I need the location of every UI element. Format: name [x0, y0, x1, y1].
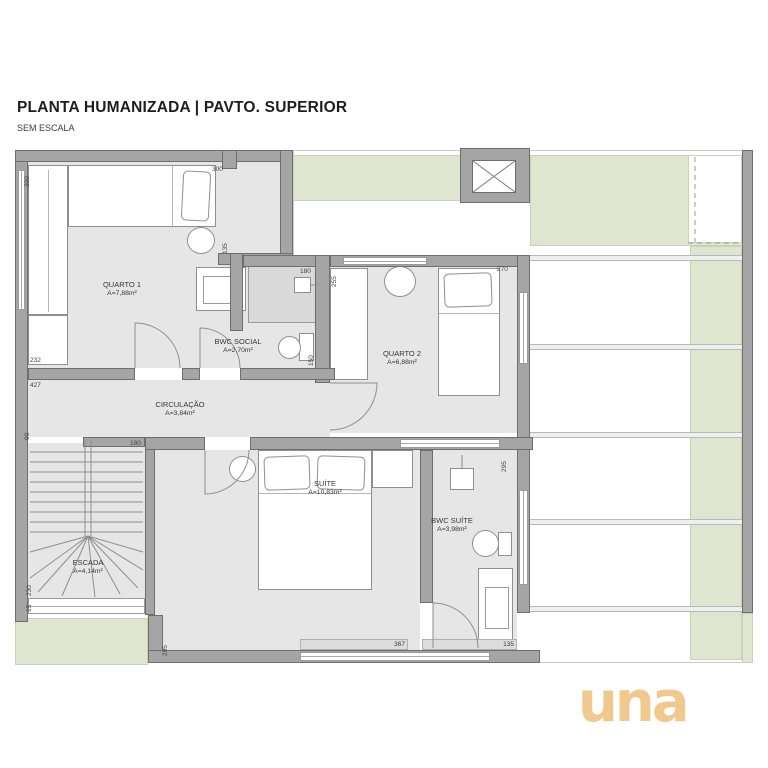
quarto1-pillow [181, 170, 212, 221]
wall-stairs-right [145, 437, 155, 615]
dim-circ-90: 90 [24, 433, 31, 440]
suite-closet-nook [372, 450, 413, 488]
dim-q1-135: 135 [222, 243, 229, 254]
quarto2-right-window [519, 292, 528, 364]
dim-bwc-180: 180 [300, 268, 311, 275]
wall-terrace-divider [280, 150, 293, 266]
pergola-beam [528, 519, 742, 525]
dim-suite-367: 367 [394, 641, 405, 648]
bwc-suite-right-window [519, 490, 528, 585]
escada-label: ESCADAA=4,14m² [43, 558, 133, 577]
quarto1-left-window [18, 170, 25, 310]
wall-corridor-north-b [182, 368, 200, 380]
bwc-suite-label: BWC SUÍTEA=3,98m² [407, 516, 497, 535]
green-roof-band-left [293, 155, 461, 201]
quarto1-side-table [187, 227, 215, 254]
dim-bwc-150: 150 [308, 355, 315, 366]
quarto1-wardrobe [28, 165, 68, 315]
dim-q1-top-300: 300 [212, 166, 223, 173]
dim-q2-255: 255 [331, 276, 338, 287]
quarto2-label: QUARTO 2A=6,88m² [357, 349, 447, 368]
dim-stairs-230: 230 [26, 585, 33, 596]
dim-q2-270: 270 [497, 266, 508, 273]
dim-q1-232: 232 [30, 357, 41, 364]
pergola-beam [528, 432, 742, 438]
wall-bwc-quarto2 [315, 255, 330, 383]
bwc-social-shower-head [294, 277, 311, 293]
dim-stairs-15: 15 [26, 605, 33, 612]
dim-circ-427: 427 [30, 382, 41, 389]
page-subtitle: SEM ESCALA [17, 123, 75, 133]
wall-quarto1-bwc [230, 253, 243, 331]
quarto2-suite-window [400, 439, 500, 448]
bwc-suite-window-sill: 135 [422, 639, 517, 650]
bwc-suite-vanity [478, 568, 513, 642]
dim-bwcsuite-295: 295 [501, 461, 508, 472]
bwc-suite-toilet-cistern [498, 532, 512, 556]
suite-ottoman [229, 456, 256, 482]
stairs-bottom-window [28, 598, 145, 614]
bwc-suite-shower-head [450, 468, 474, 490]
quarto2-pillow [443, 272, 492, 308]
dim-suite-295: 295 [162, 645, 169, 656]
wall-top-step [222, 150, 237, 169]
quarto2-side-table [384, 266, 416, 297]
green-strip-right [690, 246, 742, 660]
suite-window-sill: 367 [300, 639, 408, 650]
pergola-beam [528, 344, 742, 350]
wall-corridor-north-a [28, 368, 135, 380]
suite-label: SUÍTEA=10,83m² [280, 479, 370, 498]
wall-suite-top-a [145, 437, 205, 450]
wall-far-right [742, 150, 753, 613]
una-logo: una [578, 670, 687, 735]
pergola-beam [528, 606, 742, 612]
dim-left-300: 300 [24, 176, 31, 187]
green-area-bottom-left [15, 618, 148, 665]
wall-corridor-north-c [240, 368, 335, 380]
page-title: PLANTA HUMANIZADA | PAVTO. SUPERIOR [17, 99, 347, 117]
wall-top-outer [15, 150, 293, 162]
green-strip-corner [742, 613, 753, 663]
dim-stairs-180: 180 [130, 440, 141, 447]
bwc-social-label: BWC SOCIALA=2,70m² [193, 337, 283, 356]
shaft-interior [472, 160, 516, 193]
dim-bwcsuite-135: 135 [503, 641, 514, 648]
suite-bottom-window [300, 652, 490, 661]
pergola-beam [528, 255, 742, 261]
roof-opening-panel [688, 155, 742, 243]
quarto1-label: QUARTO 1A=7,88m² [77, 280, 167, 299]
circulacao-label: CIRCULAÇÃOA=3,84m² [135, 400, 225, 419]
quarto2-top-window [343, 257, 427, 265]
floor-plan-page: PLANTA HUMANIZADA | PAVTO. SUPERIOR SEM … [0, 0, 768, 768]
